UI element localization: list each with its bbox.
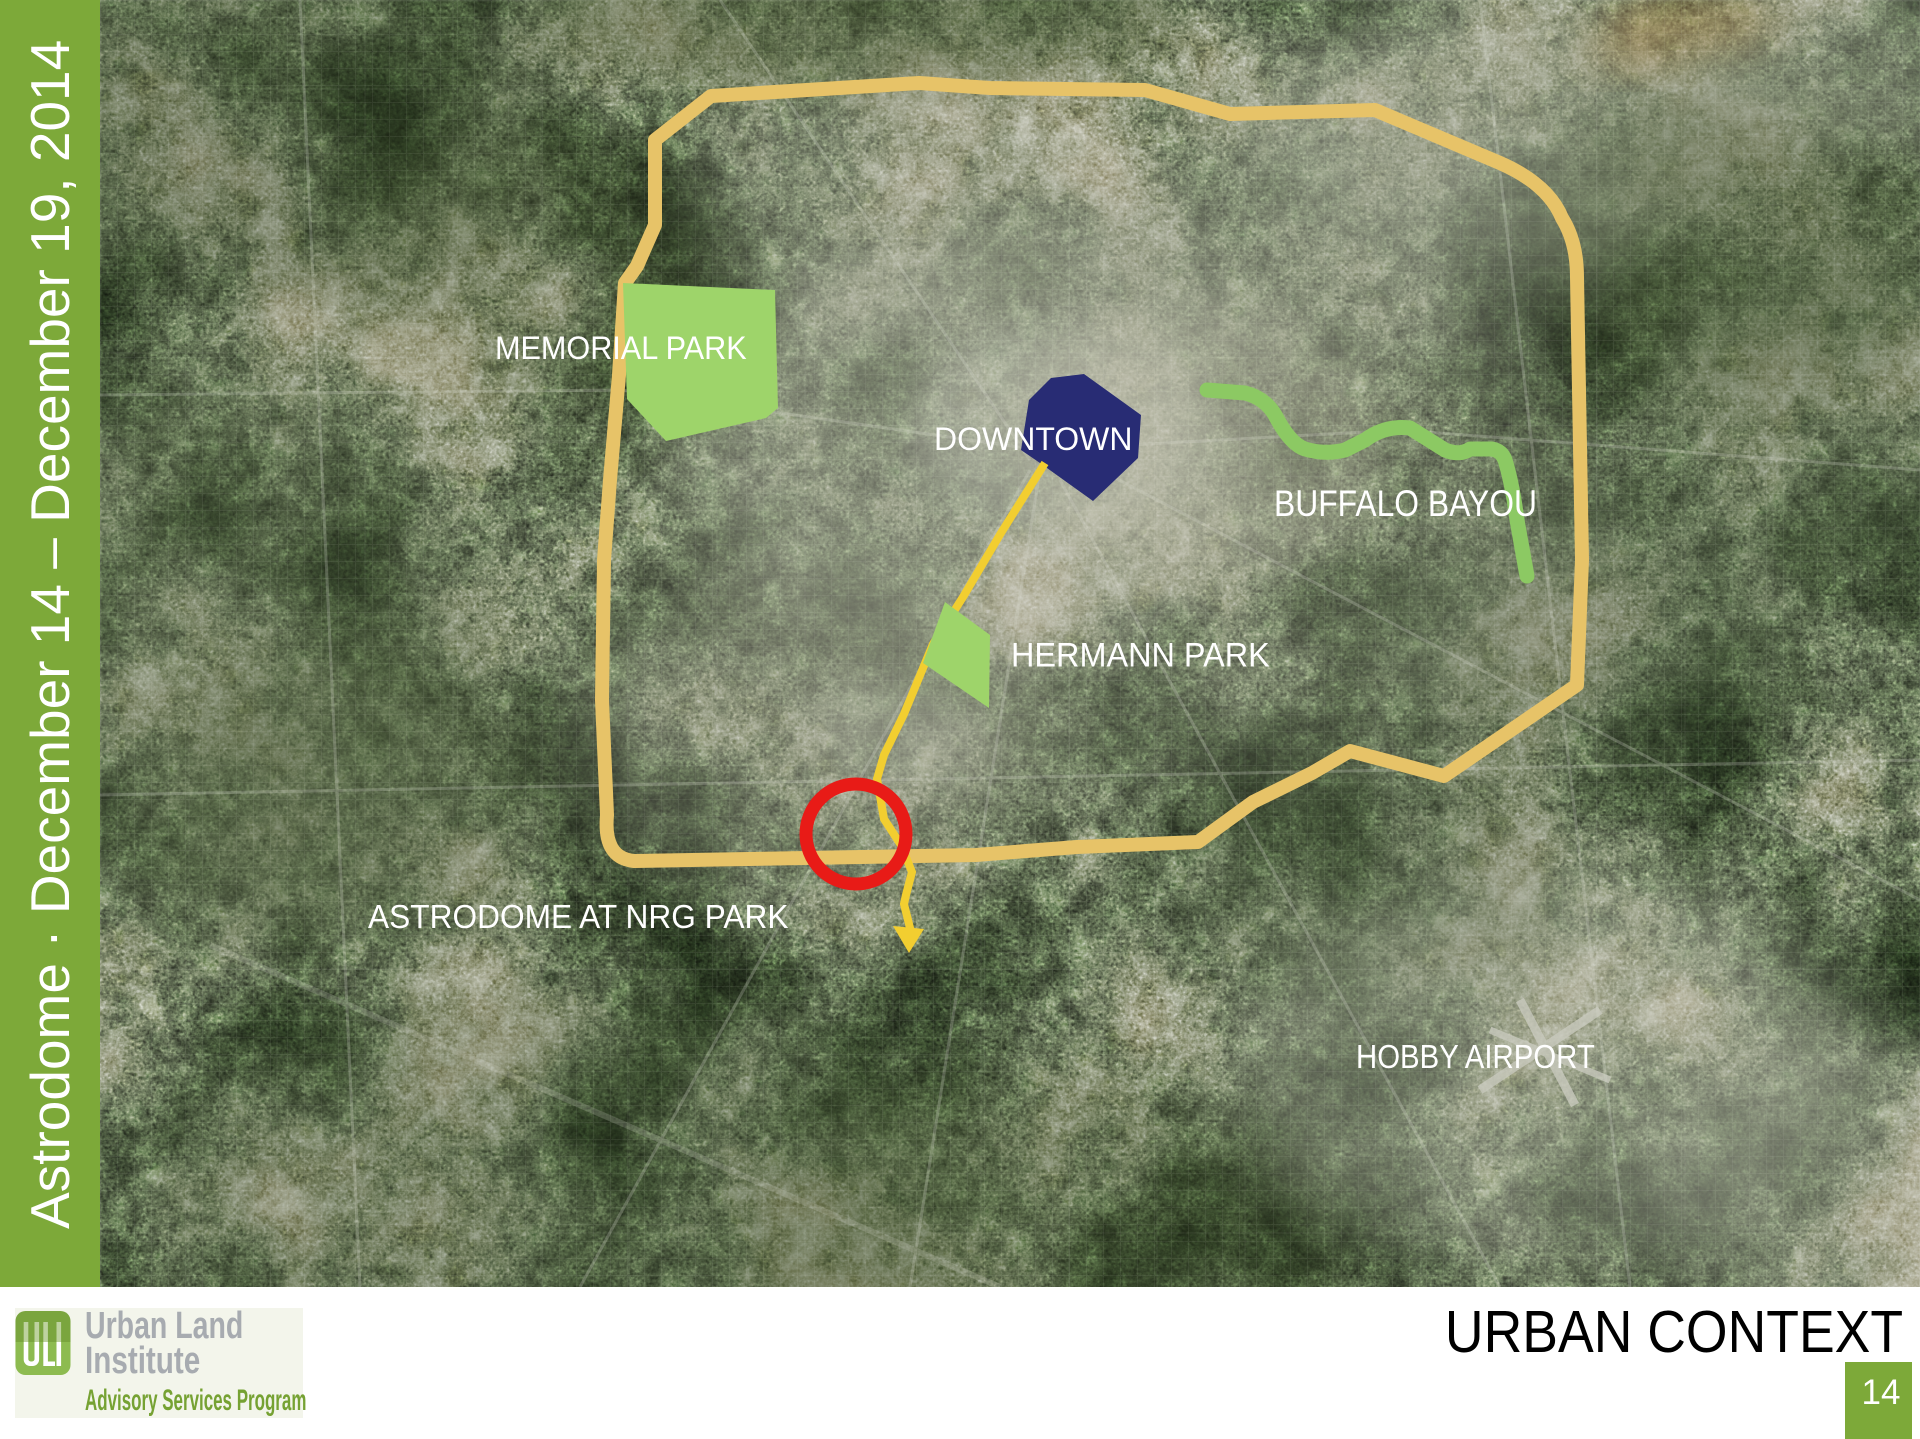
svg-text:BUFFALO BAYOU: BUFFALO BAYOU bbox=[1274, 484, 1537, 525]
svg-text:HERMANN PARK: HERMANN PARK bbox=[1011, 637, 1270, 675]
svg-text:HOBBY AIRPORT: HOBBY AIRPORT bbox=[1356, 1038, 1595, 1075]
svg-text:ASTRODOME AT NRG PARK: ASTRODOME AT NRG PARK bbox=[368, 898, 789, 935]
svg-text:MEMORIAL PARK: MEMORIAL PARK bbox=[495, 330, 747, 366]
svg-text:DOWNTOWN: DOWNTOWN bbox=[934, 421, 1132, 457]
